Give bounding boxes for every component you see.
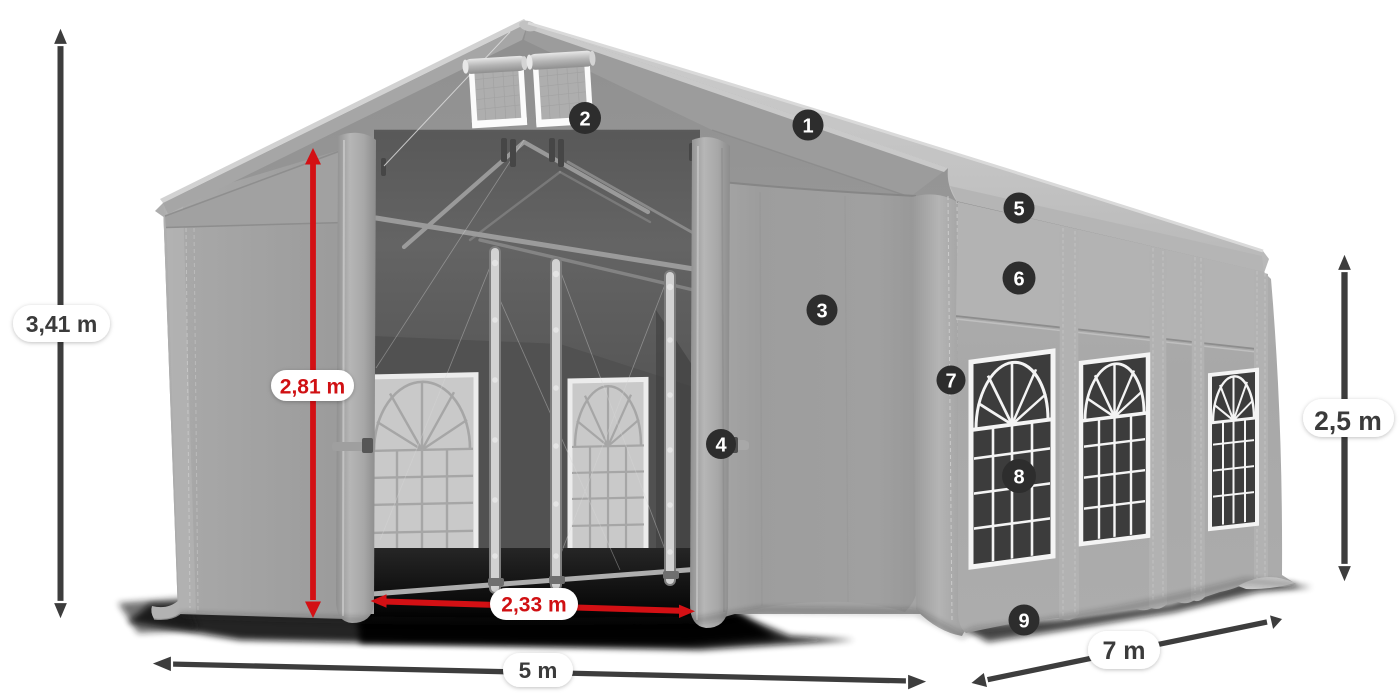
- svg-text:5: 5: [1013, 199, 1024, 221]
- svg-text:3: 3: [816, 301, 827, 323]
- svg-text:2: 2: [579, 109, 590, 131]
- svg-text:7: 7: [945, 371, 956, 393]
- svg-text:2,5 m: 2,5 m: [1314, 406, 1382, 436]
- svg-text:7 m: 7 m: [1102, 637, 1145, 665]
- svg-text:2,81 m: 2,81 m: [280, 376, 345, 399]
- svg-text:9: 9: [1018, 611, 1029, 633]
- svg-text:6: 6: [1013, 269, 1024, 291]
- svg-text:3,41 m: 3,41 m: [26, 311, 98, 337]
- svg-text:8: 8: [1013, 467, 1024, 489]
- svg-text:1: 1: [802, 116, 813, 138]
- svg-text:4: 4: [715, 435, 727, 457]
- svg-text:5 m: 5 m: [519, 658, 558, 683]
- svg-text:2,33 m: 2,33 m: [501, 594, 566, 617]
